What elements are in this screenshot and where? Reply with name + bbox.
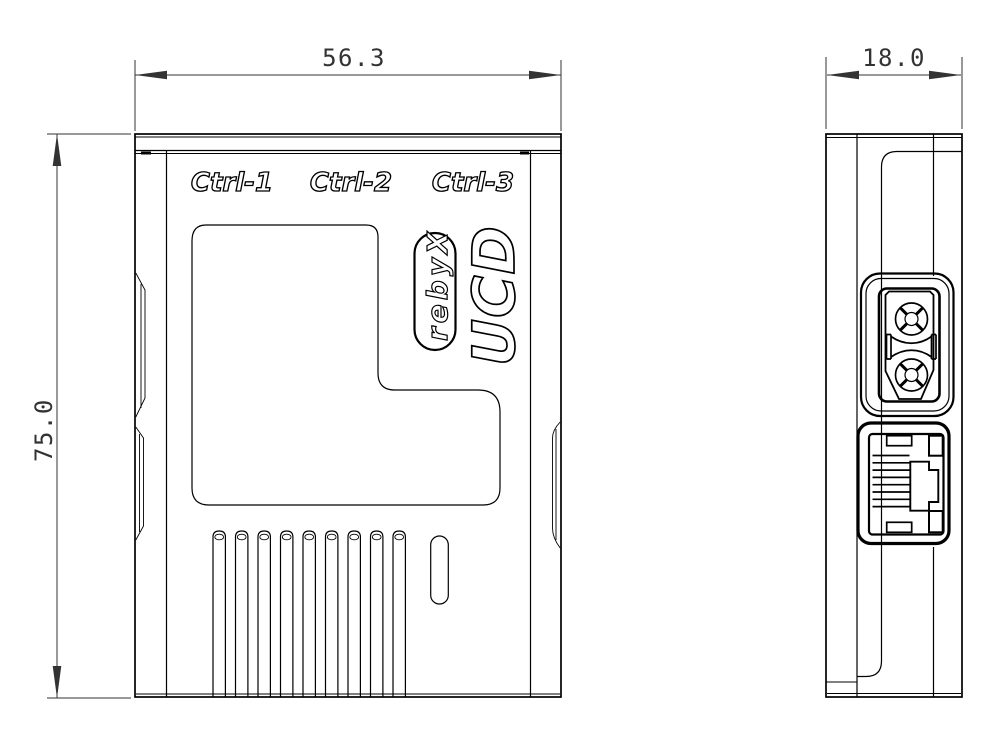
rj45-key-tab-bottom bbox=[887, 522, 912, 532]
front-view: Ctrl-1 Ctrl-2 Ctrl-3 UCD rebyX bbox=[135, 134, 561, 697]
rj45-contacts bbox=[873, 456, 910, 507]
arrowhead bbox=[53, 666, 62, 698]
brand-badge: rebyX bbox=[415, 228, 456, 350]
vent-slot bbox=[371, 531, 383, 697]
arrowhead bbox=[135, 71, 167, 80]
vent-slots bbox=[213, 531, 405, 697]
vent-slot bbox=[303, 531, 315, 697]
xt30-contact-spokes bbox=[901, 308, 923, 386]
xt30-contact-spoke bbox=[916, 364, 922, 370]
xt30-contact-spoke bbox=[916, 308, 922, 314]
port-label-ctrl-2: Ctrl-2 bbox=[310, 168, 392, 198]
rj45-led-window-top bbox=[929, 436, 943, 456]
vent-slot bbox=[348, 531, 360, 697]
dim-height-value: 75.0 bbox=[30, 398, 58, 462]
vent-slot-inner-edge bbox=[327, 534, 336, 540]
port-label-ctrl-3: Ctrl-3 bbox=[432, 168, 514, 198]
arrowhead bbox=[53, 134, 62, 166]
arrowhead bbox=[529, 71, 561, 80]
side-clip-left-upper bbox=[136, 273, 145, 417]
xt30-recess bbox=[879, 289, 940, 402]
status-slot bbox=[431, 536, 449, 604]
xt30-contact-spoke bbox=[901, 364, 907, 370]
xt30-contact-lower bbox=[896, 359, 928, 391]
xt30-power-connector bbox=[861, 274, 954, 417]
seam-tick-right bbox=[520, 152, 529, 155]
brand-badge-text: rebyX bbox=[421, 228, 454, 341]
vent-slot bbox=[326, 531, 338, 697]
rj45-led-window-bottom bbox=[929, 511, 943, 532]
vent-slot bbox=[281, 531, 293, 697]
technical-drawing-canvas: Ctrl-1 Ctrl-2 Ctrl-3 UCD rebyX bbox=[0, 0, 1000, 737]
dim-width: 56.3 bbox=[135, 44, 561, 131]
xt30-contact-spoke bbox=[916, 324, 922, 330]
arrowhead bbox=[827, 71, 859, 80]
vent-slot-inner-edge bbox=[305, 534, 314, 540]
product-logo-text: UCD bbox=[460, 225, 528, 366]
rj45-key-tab-top bbox=[887, 436, 912, 446]
xt30-retainer-bowtie bbox=[887, 335, 937, 360]
dim-height: 75.0 bbox=[30, 134, 131, 698]
vent-slot-inner-edge bbox=[260, 534, 269, 540]
vent-slot-inner-edge bbox=[282, 534, 291, 540]
vent-slot bbox=[213, 531, 225, 697]
rj45-shell bbox=[858, 423, 949, 544]
seam-tick-left bbox=[141, 152, 151, 155]
drawing-svg: Ctrl-1 Ctrl-2 Ctrl-3 UCD rebyX bbox=[0, 0, 1000, 737]
port-label-ctrl-1: Ctrl-1 bbox=[191, 168, 273, 198]
rj45-latch-slot bbox=[910, 462, 938, 511]
vent-slot-inner-edge bbox=[395, 534, 404, 540]
xt30-contact-upper bbox=[896, 303, 928, 335]
vent-slot-inner-edge bbox=[350, 534, 359, 540]
vent-slot bbox=[258, 531, 270, 697]
vent-slot bbox=[393, 531, 405, 697]
xt30-contact-spoke bbox=[901, 324, 907, 330]
vent-slot-inner-edge bbox=[237, 534, 246, 540]
side-clip-right bbox=[553, 422, 561, 548]
vent-slot-inner-edge bbox=[215, 534, 224, 540]
vent-slot-inner-edge bbox=[372, 534, 381, 540]
dim-width-value: 56.3 bbox=[322, 44, 386, 72]
side-clip-left-lower bbox=[136, 427, 144, 540]
dim-depth-value: 18.0 bbox=[862, 44, 926, 72]
rj45-ethernet-port bbox=[858, 423, 949, 544]
dim-depth: 18.0 bbox=[826, 44, 962, 129]
arrowhead bbox=[929, 71, 961, 80]
xt30-contact-spoke bbox=[916, 380, 922, 386]
side-view bbox=[826, 134, 962, 697]
xt30-contact-spoke bbox=[901, 380, 907, 386]
xt30-contact-spoke bbox=[901, 308, 907, 314]
vent-slot bbox=[236, 531, 248, 697]
